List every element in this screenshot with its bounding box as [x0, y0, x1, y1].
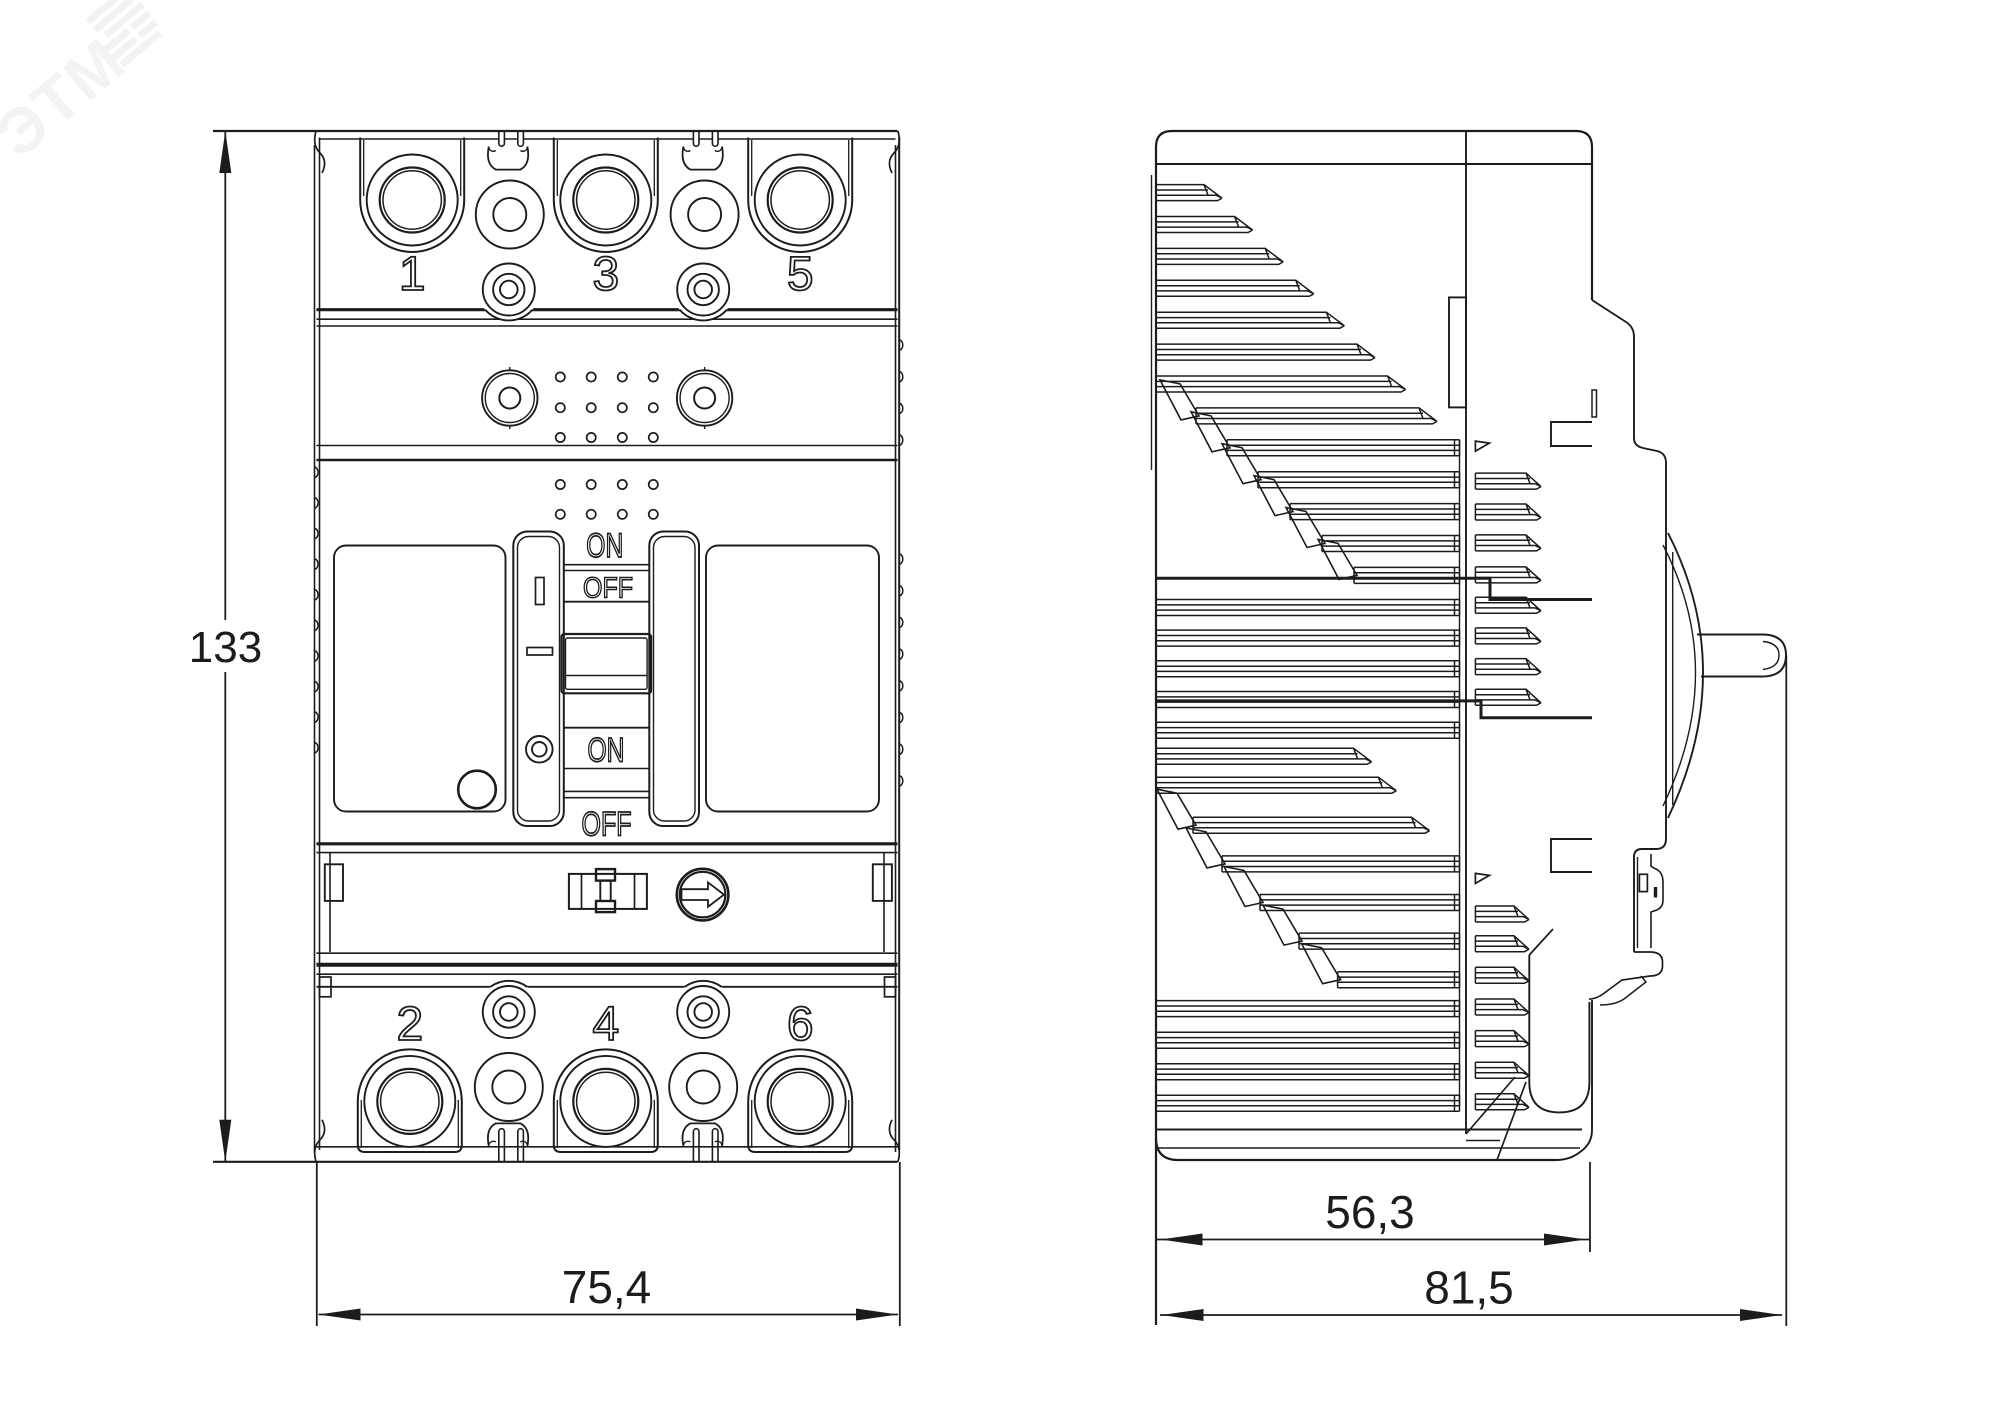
svg-text:1: 1	[399, 248, 426, 301]
svg-text:133: 133	[189, 623, 262, 672]
svg-text:6: 6	[787, 998, 814, 1051]
svg-text:2: 2	[396, 998, 423, 1051]
svg-text:OFF: OFF	[583, 573, 633, 605]
svg-text:5: 5	[787, 248, 814, 301]
svg-text:ON: ON	[588, 732, 625, 770]
svg-text:56,3: 56,3	[1325, 1186, 1415, 1238]
svg-text:3: 3	[592, 248, 619, 301]
svg-text:81,5: 81,5	[1424, 1262, 1514, 1314]
svg-text:4: 4	[592, 998, 619, 1051]
svg-text:OFF: OFF	[582, 806, 632, 844]
svg-text:ON: ON	[586, 527, 623, 565]
svg-text:75,4: 75,4	[562, 1261, 652, 1313]
